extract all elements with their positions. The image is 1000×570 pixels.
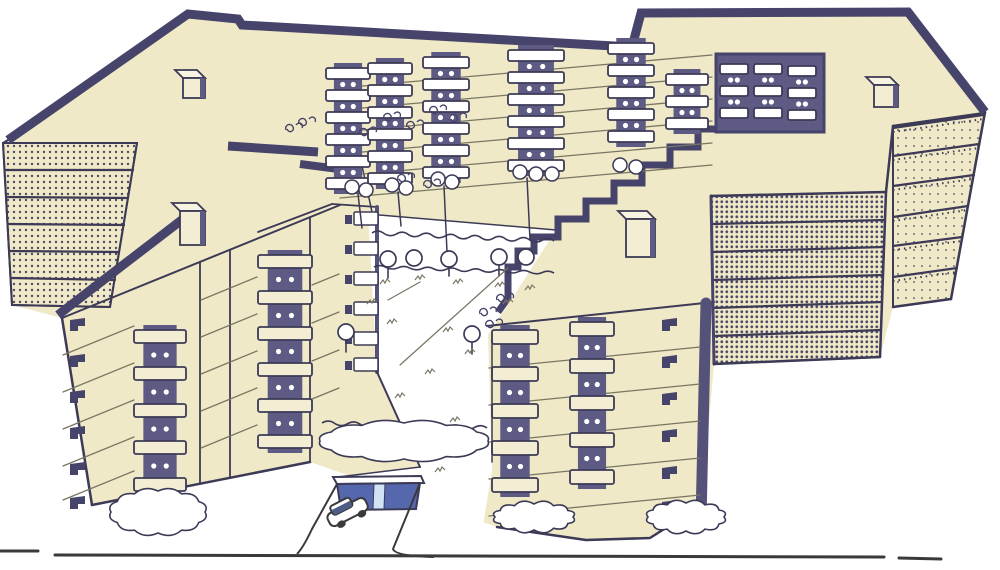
balcony-railing [382, 165, 387, 170]
balcony-railing [393, 121, 398, 126]
balcony-slab [788, 110, 816, 120]
courtyard-tree [406, 250, 422, 266]
inner-courtyard-balcony [354, 272, 378, 285]
window-mark [345, 245, 352, 254]
balcony-slab [134, 367, 186, 380]
entrance-bush [613, 158, 627, 172]
balcony-railing [289, 313, 294, 318]
street-ground-line [55, 555, 884, 557]
balcony-slab [258, 363, 312, 376]
balcony-railing [340, 170, 345, 175]
balcony-railing [769, 99, 774, 104]
courtyard-tree [464, 326, 480, 342]
balcony-slab [134, 441, 186, 454]
balcony-recess-shadow [376, 58, 404, 189]
balcony-railing [351, 126, 356, 131]
balcony-slab [754, 108, 782, 118]
balcony-railing [796, 79, 801, 84]
inner-courtyard-balcony [354, 332, 378, 345]
balcony-stack [788, 61, 816, 125]
balcony-railing [507, 464, 512, 469]
balcony-railing [164, 352, 169, 357]
balcony-railing [393, 165, 398, 170]
balcony-slab [423, 79, 469, 90]
balcony-slab [492, 478, 538, 492]
balcony-railing [679, 88, 684, 93]
balcony-railing [623, 57, 628, 62]
balcony-railing [679, 110, 684, 115]
balcony-railing [351, 170, 356, 175]
balcony-slab [258, 435, 312, 448]
balcony-slab [570, 322, 614, 336]
window-mark [345, 361, 352, 370]
balcony-railing [438, 137, 443, 142]
balcony-railing [276, 349, 281, 354]
balcony-railing [393, 99, 398, 104]
balcony-slab [258, 327, 312, 340]
balcony-railing [518, 464, 523, 469]
balcony-railing [518, 427, 523, 432]
balcony-railing [449, 137, 454, 142]
balcony-railing [449, 159, 454, 164]
balcony-slab [608, 131, 654, 142]
balcony-railing [689, 110, 694, 115]
balcony-slab [508, 138, 564, 149]
entrance-bush [545, 167, 559, 181]
balcony-railing [382, 143, 387, 148]
building-edge [701, 303, 706, 520]
balcony-railing [584, 345, 589, 350]
balcony-railing [289, 385, 294, 390]
balcony-slab [368, 63, 412, 74]
balcony-railing [527, 86, 532, 91]
balcony-railing [584, 382, 589, 387]
shrub-cluster [320, 420, 489, 461]
balcony-recess-shadow [431, 52, 460, 183]
balcony-railing [393, 143, 398, 148]
courtyard-tree [518, 249, 534, 265]
balcony-slab [666, 74, 708, 85]
balcony-slab [492, 330, 538, 344]
balcony-railing [276, 421, 281, 426]
street-ground-line [899, 558, 941, 559]
balcony-railing [438, 159, 443, 164]
balcony-slab [492, 441, 538, 455]
wall-floor-divider [8, 224, 124, 225]
balcony-stack [754, 59, 782, 123]
entrance-bush [513, 165, 527, 179]
rooftop-unit-shade [200, 211, 205, 245]
balcony-stack [720, 59, 748, 123]
balcony-slab [134, 404, 186, 417]
balcony-railing [289, 421, 294, 426]
entrance-bush [629, 160, 643, 174]
balcony-railing [340, 104, 345, 109]
courtyard-tree [441, 251, 457, 267]
balcony-railing [527, 152, 532, 157]
balcony-railing [382, 121, 387, 126]
rooftop-unit-shade [893, 85, 898, 107]
drawing-stage: Hand-drawn aerial axonometric illustrati… [0, 0, 1000, 570]
balcony-slab [326, 90, 370, 101]
entrance-bush [445, 175, 459, 189]
balcony-slab [492, 404, 538, 418]
balcony-railing [382, 99, 387, 104]
balcony-railing [276, 313, 281, 318]
window-mark [345, 305, 352, 314]
rooftop-unit-shade [650, 219, 655, 257]
balcony-railing [769, 77, 774, 82]
balcony-railing [762, 77, 767, 82]
balcony-slab [368, 151, 412, 162]
balcony-recess-shadow [268, 250, 303, 453]
entrance-bush [385, 178, 399, 192]
balcony-railing [151, 352, 156, 357]
balcony-slab [326, 156, 370, 167]
balcony-railing [382, 77, 387, 82]
balcony-railing [634, 57, 639, 62]
balcony-slab [788, 88, 816, 98]
rooftop-unit-top [618, 211, 655, 219]
balcony-slab [368, 129, 412, 140]
balcony-railing [634, 123, 639, 128]
balcony-railing [595, 456, 600, 461]
balcony-railing [595, 382, 600, 387]
balcony-railing [164, 463, 169, 468]
balcony-railing [507, 427, 512, 432]
balcony-railing [351, 82, 356, 87]
balcony-railing [623, 123, 628, 128]
inner-courtyard-balcony [354, 358, 378, 371]
shrub-cluster [494, 501, 575, 533]
balcony-railing [595, 419, 600, 424]
garage-center-pillar [373, 484, 385, 509]
balcony-railing [438, 93, 443, 98]
balcony-slab [326, 68, 370, 79]
balcony-railing [623, 79, 628, 84]
balcony-recess-shadow [518, 45, 554, 176]
balcony-slab [368, 85, 412, 96]
balcony-slab [508, 50, 564, 61]
courtyard-tree [380, 251, 396, 267]
balcony-railing [507, 390, 512, 395]
balcony-slab [570, 470, 614, 484]
balcony-railing [540, 86, 545, 91]
balcony-railing [527, 64, 532, 69]
balcony-railing [276, 385, 281, 390]
wall-floor-divider [9, 251, 119, 252]
balcony-railing [803, 101, 808, 106]
inner-courtyard-balcony [354, 242, 378, 255]
balcony-slab [368, 107, 412, 118]
balcony-slab [258, 255, 312, 268]
balcony-railing [584, 456, 589, 461]
balcony-recess-shadow [334, 63, 362, 194]
balcony-slab [788, 66, 816, 76]
balcony-slab [608, 65, 654, 76]
balcony-slab [666, 118, 708, 129]
courtyard-tree [338, 324, 354, 340]
balcony-slab [720, 64, 748, 74]
balcony-railing [340, 82, 345, 87]
balcony-slab [326, 112, 370, 123]
balcony-slab [423, 145, 469, 156]
balcony-railing [449, 71, 454, 76]
balcony-railing [527, 130, 532, 135]
balcony-slab [423, 57, 469, 68]
balcony-railing [540, 64, 545, 69]
courtyard-tree [491, 249, 507, 265]
entrance-bush [529, 167, 543, 181]
window-mark [345, 215, 352, 224]
balcony-slab [608, 109, 654, 120]
window-mark [70, 496, 85, 509]
window-mark [345, 275, 352, 284]
balcony-slab [608, 43, 654, 54]
balcony-slab [666, 96, 708, 107]
balcony-railing [289, 349, 294, 354]
balcony-slab [720, 86, 748, 96]
shrub-cluster [110, 489, 206, 536]
balcony-slab [508, 116, 564, 127]
rooftop-unit-shade [200, 78, 205, 98]
balcony-railing [689, 88, 694, 93]
balcony-slab [570, 396, 614, 410]
balcony-railing [728, 99, 733, 104]
balcony-railing [393, 77, 398, 82]
balcony-slab [508, 94, 564, 105]
balcony-railing [276, 277, 281, 282]
balcony-railing [634, 101, 639, 106]
wall-floor-divider [6, 197, 128, 198]
balcony-railing [340, 126, 345, 131]
balcony-railing [351, 104, 356, 109]
balcony-railing [164, 389, 169, 394]
shrub-cluster [647, 500, 726, 533]
balcony-slab [508, 72, 564, 83]
balcony-railing [151, 463, 156, 468]
balcony-slab [608, 87, 654, 98]
balcony-railing [735, 77, 740, 82]
balcony-stack [608, 38, 654, 147]
balcony-railing [351, 148, 356, 153]
balcony-railing [762, 99, 767, 104]
roof-edge-band [228, 146, 318, 152]
balcony-railing [518, 390, 523, 395]
balcony-railing [584, 419, 589, 424]
balcony-railing [540, 108, 545, 113]
inner-courtyard-balcony [354, 302, 378, 315]
balcony-slab [423, 123, 469, 134]
balcony-slab [754, 64, 782, 74]
balcony-slab [423, 167, 469, 178]
balcony-railing [164, 426, 169, 431]
balcony-railing [438, 115, 443, 120]
balcony-railing [595, 345, 600, 350]
balcony-railing [735, 99, 740, 104]
balcony-slab [258, 291, 312, 304]
balcony-railing [540, 130, 545, 135]
inner-courtyard-balcony [354, 212, 378, 225]
balcony-slab [134, 330, 186, 343]
balcony-slab [720, 108, 748, 118]
balcony-railing [623, 101, 628, 106]
balcony-railing [449, 93, 454, 98]
entrance-bush [345, 180, 359, 194]
entrance-bush [399, 181, 413, 195]
balcony-railing [803, 79, 808, 84]
balcony-railing [438, 71, 443, 76]
balcony-railing [796, 101, 801, 106]
balcony-slab [258, 399, 312, 412]
balcony-railing [540, 152, 545, 157]
balcony-railing [527, 108, 532, 113]
balcony-railing [340, 148, 345, 153]
apartment-complex-axonometric-drawing: Hand-drawn aerial axonometric illustrati… [0, 0, 1000, 570]
balcony-railing [728, 77, 733, 82]
balcony-slab [492, 367, 538, 381]
balcony-railing [289, 277, 294, 282]
window-mark [70, 462, 85, 475]
balcony-stack [666, 69, 708, 134]
balcony-railing [507, 353, 512, 358]
balcony-railing [151, 426, 156, 431]
balcony-slab [570, 433, 614, 447]
balcony-railing [151, 389, 156, 394]
balcony-slab [754, 86, 782, 96]
balcony-slab [570, 359, 614, 373]
entrance-bush [359, 183, 373, 197]
balcony-railing [518, 353, 523, 358]
balcony-railing [634, 79, 639, 84]
